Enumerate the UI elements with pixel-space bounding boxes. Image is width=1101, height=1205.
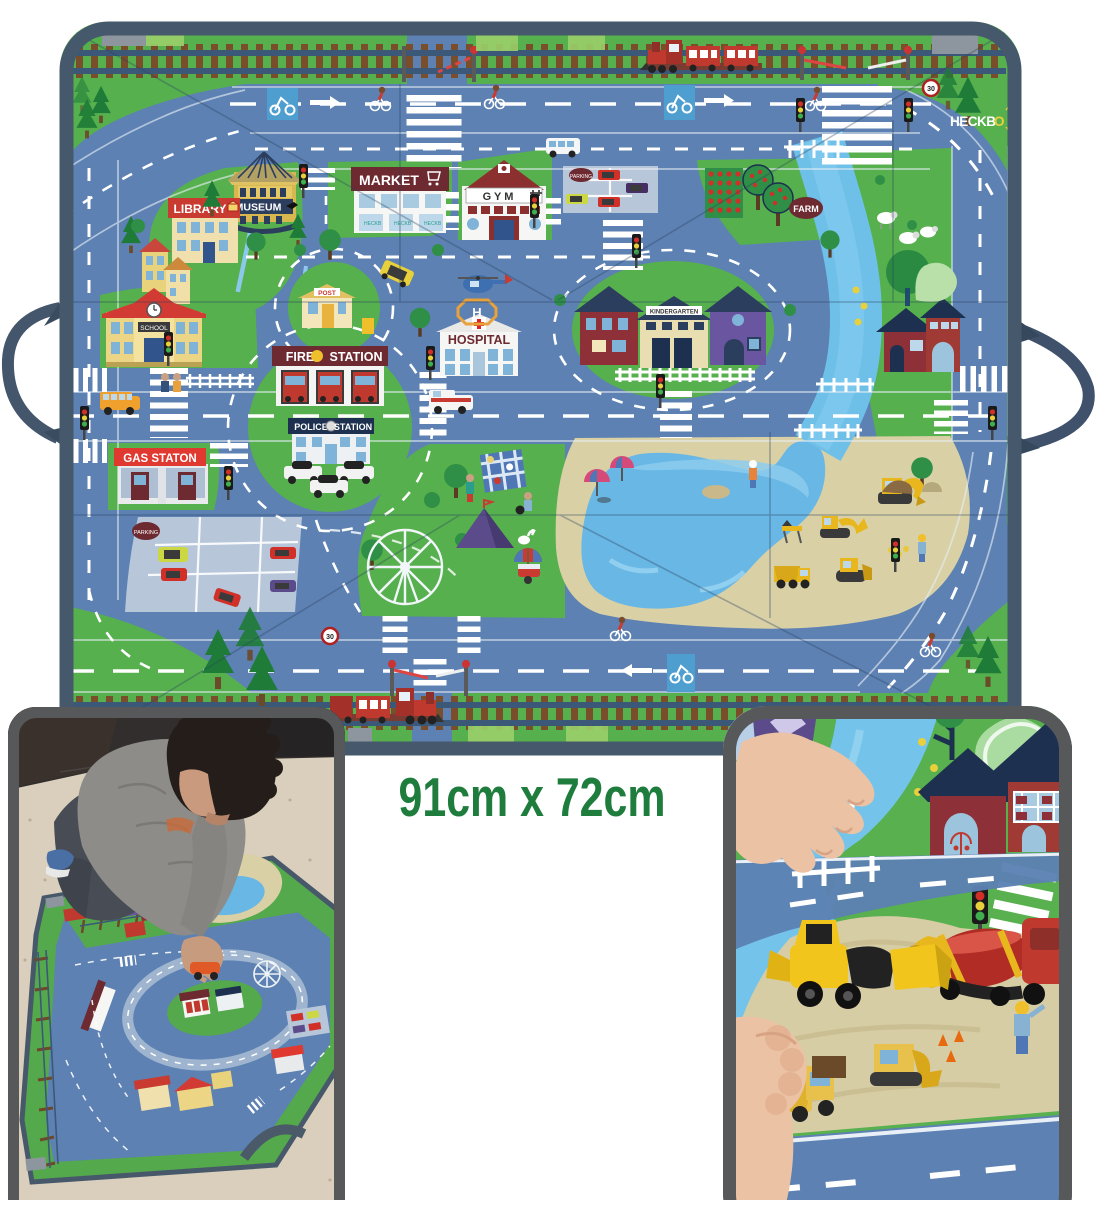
svg-text:MARKET: MARKET (359, 172, 419, 188)
svg-text:MUSEUM: MUSEUM (235, 202, 282, 214)
svg-text:FIRE: FIRE (286, 350, 314, 364)
svg-text:HECKB: HECKB (364, 221, 382, 227)
svg-text:POST: POST (318, 290, 336, 297)
svg-text:GAS STATON: GAS STATON (123, 453, 196, 465)
svg-text:O: O (994, 114, 1005, 129)
svg-text:KINDERGARTEN: KINDERGARTEN (650, 310, 698, 316)
svg-text:PARKING: PARKING (134, 530, 158, 536)
svg-text:HECKB: HECKB (394, 221, 412, 227)
svg-text:SCHOOL: SCHOOL (140, 325, 168, 332)
svg-text:91cm x 72cm: 91cm x 72cm (399, 766, 666, 828)
svg-text:G Y M: G Y M (483, 191, 514, 203)
svg-text:PARKING: PARKING (570, 174, 592, 180)
svg-text:HOSPITAL: HOSPITAL (448, 333, 511, 347)
svg-text:FARM: FARM (793, 204, 819, 214)
svg-text:H: H (472, 305, 481, 320)
svg-text:STATION: STATION (334, 422, 372, 432)
svg-text:STATION: STATION (329, 350, 382, 364)
svg-text:POLICE: POLICE (294, 422, 328, 432)
svg-text:HECKB: HECKB (424, 221, 442, 227)
svg-text:HECKB: HECKB (950, 114, 996, 129)
